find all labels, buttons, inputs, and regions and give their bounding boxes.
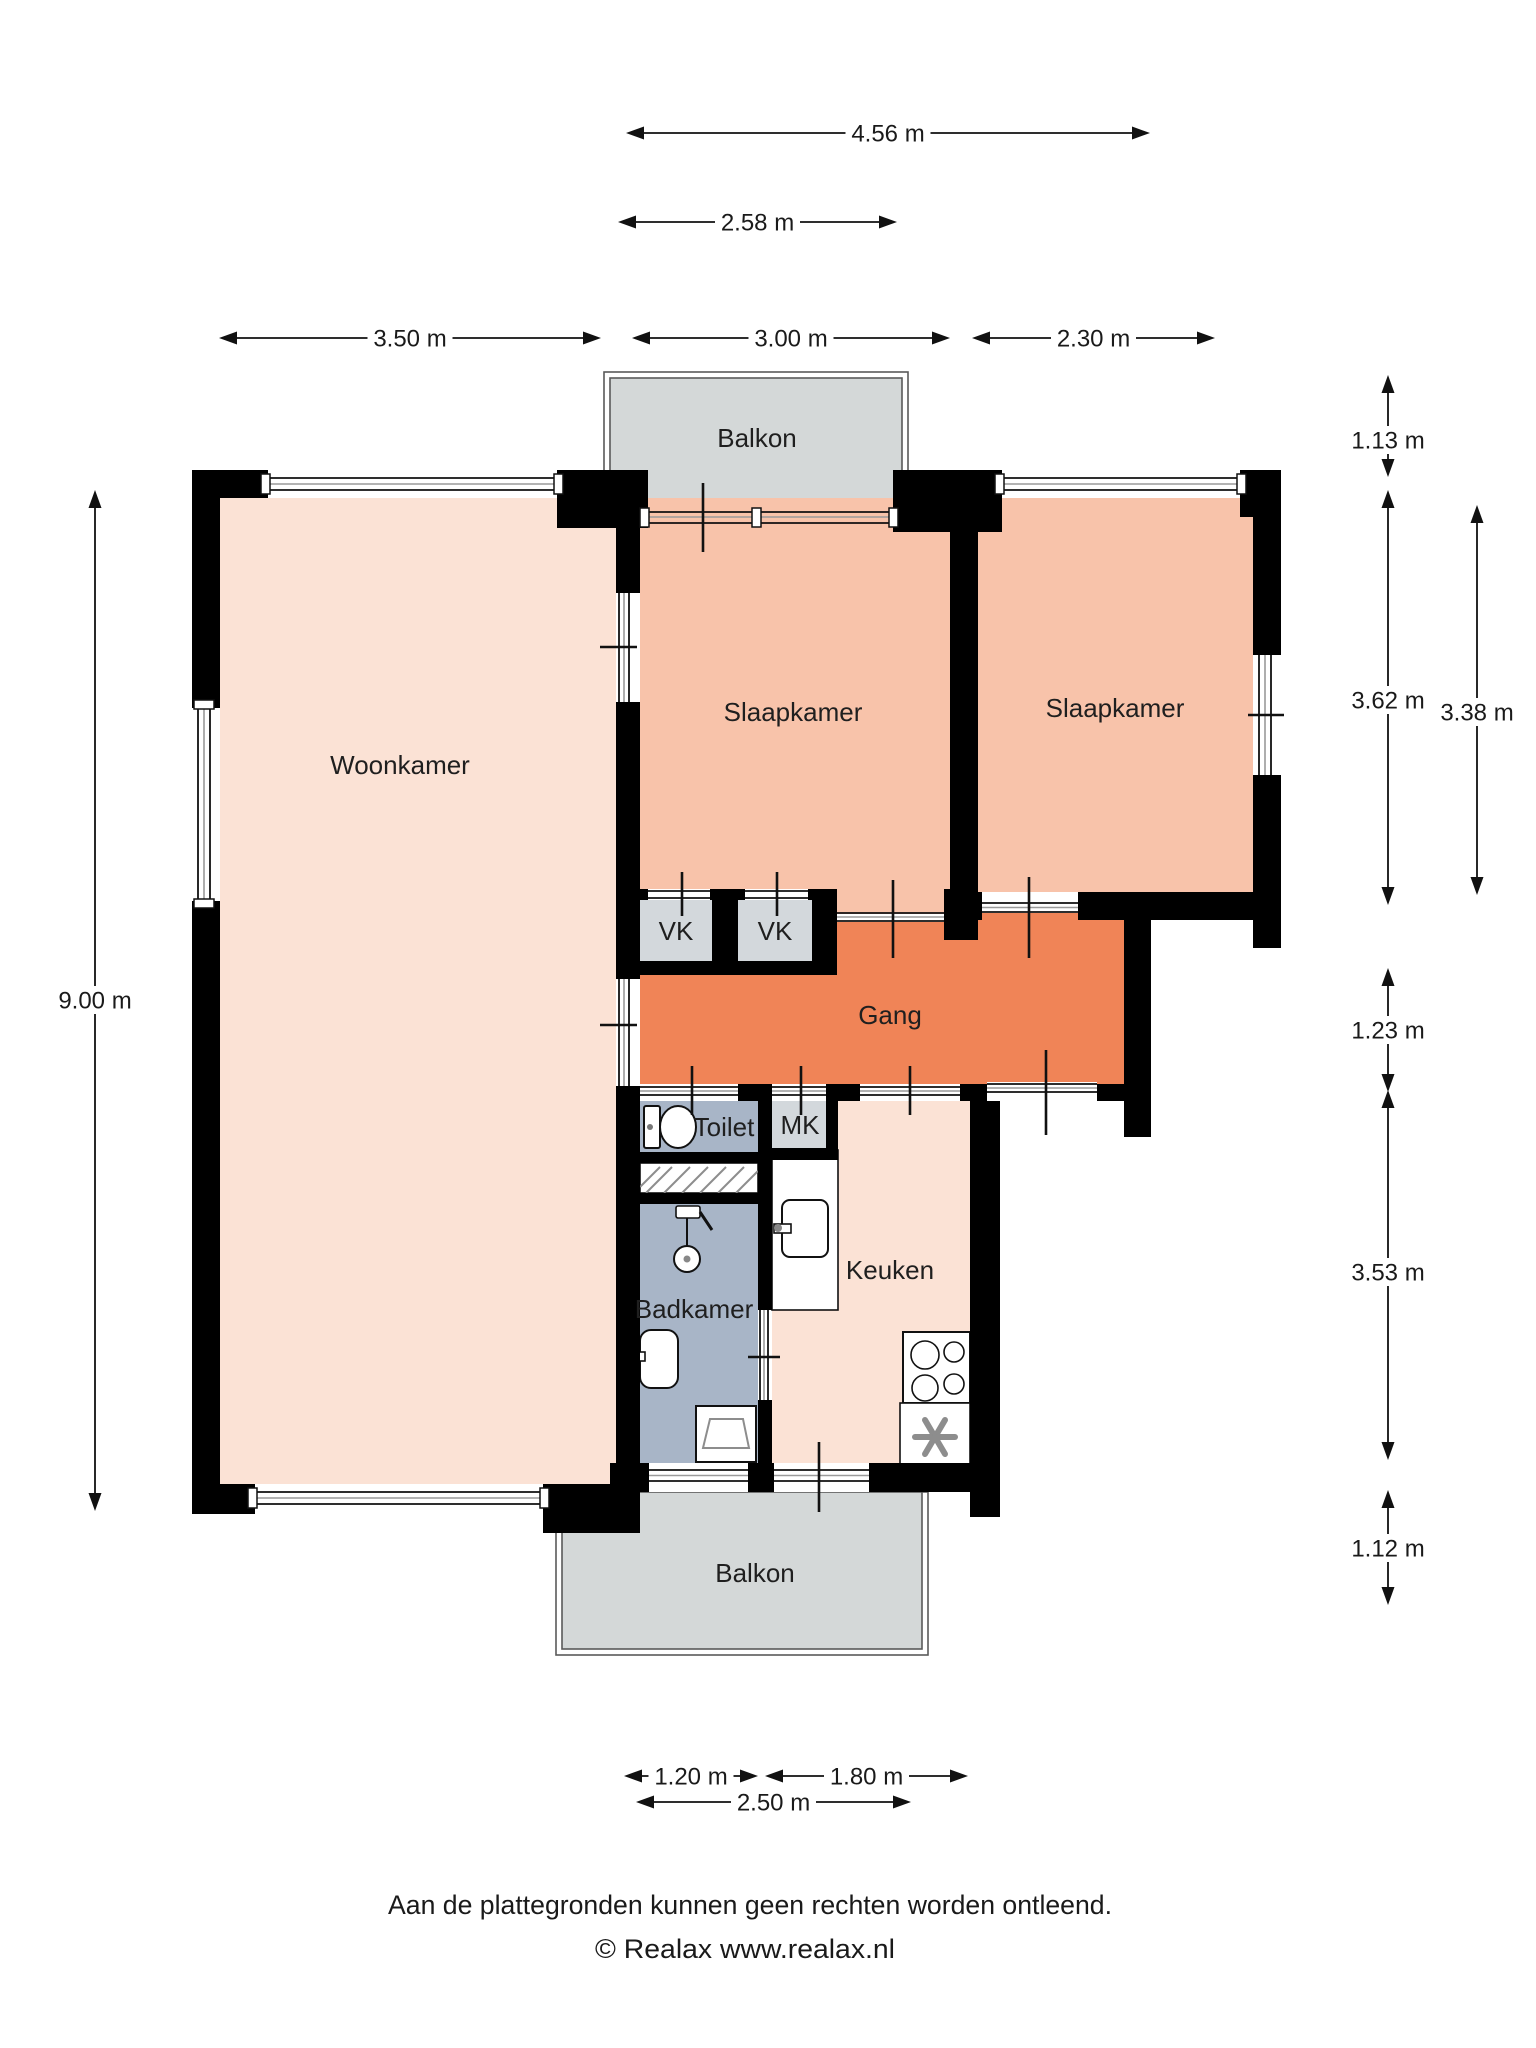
room-label-keuken: Keuken xyxy=(846,1255,934,1285)
room-label-gang: Gang xyxy=(858,1000,922,1030)
dimension-label: 2.30 m xyxy=(1057,326,1130,353)
room-label-slaapkamer-1: Slaapkamer xyxy=(724,697,863,727)
dim-1-13: 1.13 m xyxy=(1346,375,1431,477)
dimension-label: 1.80 m xyxy=(830,1764,903,1791)
dim-4-56: 4.56 m xyxy=(626,119,1150,148)
dim-1-80: 1.80 m xyxy=(765,1762,968,1791)
kitchen-sink-counter xyxy=(772,1150,838,1310)
slaapkamer-1-floor-ext xyxy=(837,889,944,914)
dimension-label: 1.23 m xyxy=(1351,1018,1424,1045)
dim-2-50: 2.50 m xyxy=(636,1788,911,1817)
dim-1-20: 1.20 m xyxy=(624,1762,758,1791)
room-fills xyxy=(220,498,1253,1484)
washer-fixture xyxy=(696,1406,756,1462)
dim-3-00: 3.00 m xyxy=(632,324,950,353)
window-slaapkamer-2-right xyxy=(1248,655,1284,775)
dimension-label: 1.12 m xyxy=(1351,1536,1424,1563)
dim-3-38: 3.38 m xyxy=(1435,505,1520,895)
floor-plan-page: BalkonWoonkamerSlaapkamerSlaapkamerGangV… xyxy=(0,0,1536,2048)
footer-disclaimer: Aan de plattegronden kunnen geen rechten… xyxy=(388,1890,1112,1920)
balcony-door-badkamer xyxy=(649,1463,748,1492)
room-label-balkon-bottom: Balkon xyxy=(715,1558,795,1588)
room-label-mk: MK xyxy=(781,1110,821,1140)
dim-1-12: 1.12 m xyxy=(1346,1490,1431,1605)
dimension-label: 3.50 m xyxy=(373,326,446,353)
slaapkamer-1-floor xyxy=(640,498,950,889)
room-label-woonkamer: Woonkamer xyxy=(330,750,470,780)
room-label-balkon-top: Balkon xyxy=(717,423,797,453)
room-label-toilet: Toilet xyxy=(694,1112,755,1142)
dim-1-23: 1.23 m xyxy=(1346,968,1431,1092)
dimension-label: 1.20 m xyxy=(654,1764,727,1791)
dimension-label: 9.00 m xyxy=(58,988,131,1015)
room-label-vk-2: VK xyxy=(758,916,793,946)
dimension-label: 2.58 m xyxy=(721,210,794,237)
hatched-shaft xyxy=(640,1163,758,1193)
room-label-badkamer: Badkamer xyxy=(635,1294,754,1324)
dim-9-00: 9.00 m xyxy=(53,490,138,1511)
dimension-label: 2.50 m xyxy=(737,1790,810,1817)
dim-2-30: 2.30 m xyxy=(972,324,1215,353)
dimension-label: 4.56 m xyxy=(851,121,924,148)
fan-fixture xyxy=(900,1403,970,1470)
dim-3-50: 3.50 m xyxy=(219,324,601,353)
dimension-label: 3.00 m xyxy=(754,326,827,353)
window-woonkamer-left xyxy=(192,700,220,908)
dimension-label: 3.53 m xyxy=(1351,1260,1424,1287)
footer-copyright: © Realax www.realax.nl xyxy=(595,1934,895,1964)
window-slaapkamer-2-top xyxy=(995,470,1246,498)
window-woonkamer-bottom xyxy=(248,1484,549,1514)
footer: Aan de plattegronden kunnen geen rechten… xyxy=(388,1890,1112,1964)
room-label-slaapkamer-2: Slaapkamer xyxy=(1046,693,1185,723)
dim-3-62: 3.62 m xyxy=(1346,490,1431,905)
woonkamer-floor xyxy=(220,498,616,1484)
stove-fixture xyxy=(903,1332,970,1403)
toilet-fixture xyxy=(644,1106,696,1148)
dim-2-58: 2.58 m xyxy=(618,208,897,237)
dim-3-53: 3.53 m xyxy=(1346,1090,1431,1460)
window-woonkamer-top xyxy=(261,470,563,498)
dimension-label: 3.38 m xyxy=(1440,700,1513,727)
dimension-label: 1.13 m xyxy=(1351,428,1424,455)
room-label-vk-1: VK xyxy=(659,916,694,946)
dimension-label: 3.62 m xyxy=(1351,688,1424,715)
floor-plan-drawing: BalkonWoonkamerSlaapkamerSlaapkamerGangV… xyxy=(0,0,1536,2048)
